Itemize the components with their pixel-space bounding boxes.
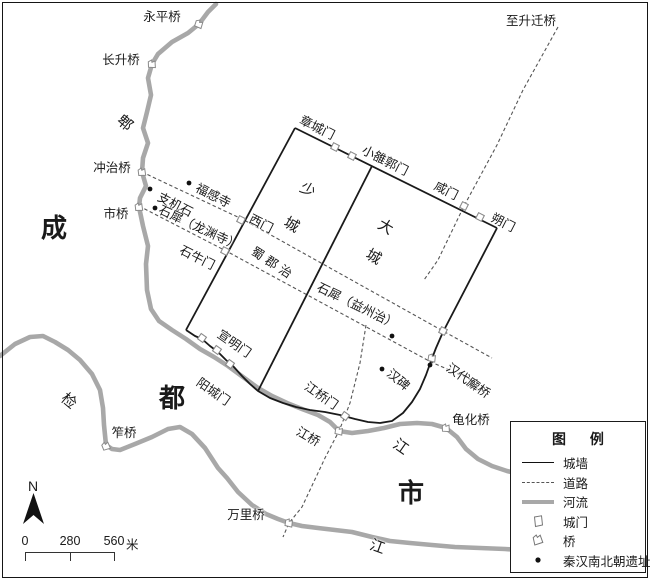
label-yongping-bridge: 永平桥 — [143, 11, 181, 24]
road-line-icon — [520, 482, 556, 483]
wall-line-icon — [520, 462, 556, 463]
north-label: N — [28, 478, 38, 494]
site-dot-icon — [520, 555, 556, 565]
label-to-shengqian-bridge: 至升迁桥 — [506, 15, 556, 28]
label-shixi-longyuansi: 石犀（龙渊寺） — [157, 204, 242, 252]
label-jiang-east: 江 — [390, 438, 411, 459]
legend-row-site: 秦汉南北朝遗址 — [511, 551, 645, 571]
label-shaocheng-cheng: 城 — [281, 216, 302, 236]
legend-label-gate: 城门 — [563, 512, 588, 531]
label-shujun-seat: 蜀郡治 — [249, 245, 297, 282]
scale-tick-0: 0 — [22, 534, 29, 548]
label-changsheng-bridge: 长升桥 — [102, 54, 140, 67]
legend-row-river: 河流 — [511, 492, 645, 512]
city-gate-icon — [520, 515, 556, 528]
scale-bar-tick-mark — [70, 552, 71, 561]
bridge-icon — [520, 534, 556, 547]
legend-label-river: 河流 — [563, 492, 588, 511]
label-shi-bridge: 市桥 — [103, 208, 128, 221]
label-han-stele: 汉碑 — [384, 367, 411, 393]
label-fugan-temple: 福感寺 — [193, 182, 232, 210]
label-xuanming-gate: 宣明门 — [215, 328, 253, 360]
label-xian-gate: 咸门 — [432, 180, 460, 202]
label-zuo-bridge: 笮桥 — [111, 427, 136, 440]
label-jiang-south: 江 — [367, 538, 386, 557]
label-shaocheng-shao: 少 — [297, 181, 318, 201]
north-arrow-icon — [20, 493, 47, 526]
legend-row-gate: 城门 — [511, 512, 645, 532]
label-wanli-bridge: 万里桥 — [227, 509, 265, 522]
scale-bar-tick-mark — [114, 552, 115, 561]
label-shuo-gate: 朔门 — [489, 212, 517, 234]
label-jiang-bridge: 江桥 — [294, 425, 322, 448]
label-cheng-char: 成 — [41, 215, 67, 241]
label-zhangcheng-gate: 章城门 — [297, 114, 336, 142]
label-handai-xie-bridge: 汉代廨桥 — [444, 362, 492, 401]
label-guihua-bridge: 龟化桥 — [452, 414, 490, 427]
historic-chengdu-map: 永平桥长升桥郫冲治桥市桥成福感寺支机石石犀（龙渊寺）石牛门西门章城门小雒郭门咸门… — [0, 0, 650, 580]
label-west-gate: 西门 — [247, 213, 275, 235]
label-shi-char: 市 — [398, 480, 424, 506]
scale-tick-280: 280 — [60, 534, 81, 548]
label-yangcheng-gate: 阳城门 — [194, 376, 232, 408]
legend-row-road: 道路 — [511, 473, 645, 493]
label-pi-river: 郫 — [113, 113, 134, 134]
label-dacheng-cheng: 城 — [363, 248, 384, 268]
label-shixi-yizhou-seat: 石犀（益州治） — [315, 281, 399, 331]
label-shiniu-gate: 石牛门 — [177, 244, 216, 272]
scale-unit: 米 — [126, 534, 139, 553]
legend-label-road: 道路 — [563, 473, 588, 492]
legend: 图 例 城墙 道路 河流 城门 桥 — [510, 421, 646, 573]
legend-row-wall: 城墙 — [511, 453, 645, 473]
label-jiangqiao-gate: 江桥门 — [302, 380, 340, 412]
label-du-char: 都 — [159, 385, 185, 411]
legend-title: 图 例 — [511, 422, 645, 453]
label-jian-river: 检 — [57, 391, 78, 412]
label-xiaoluoguo-gate: 小雒郭门 — [360, 144, 410, 178]
legend-label-site: 秦汉南北朝遗址 — [563, 551, 650, 570]
scale-tick-560: 560 — [104, 534, 125, 548]
scale-bar-tick-mark — [25, 552, 26, 561]
label-chongzhi-bridge: 冲治桥 — [93, 162, 131, 175]
legend-label-bridge: 桥 — [563, 531, 576, 550]
legend-label-wall: 城墙 — [563, 453, 588, 472]
legend-row-bridge: 桥 — [511, 531, 645, 551]
label-dacheng-da: 大 — [375, 218, 396, 238]
river-line-icon — [520, 500, 556, 504]
